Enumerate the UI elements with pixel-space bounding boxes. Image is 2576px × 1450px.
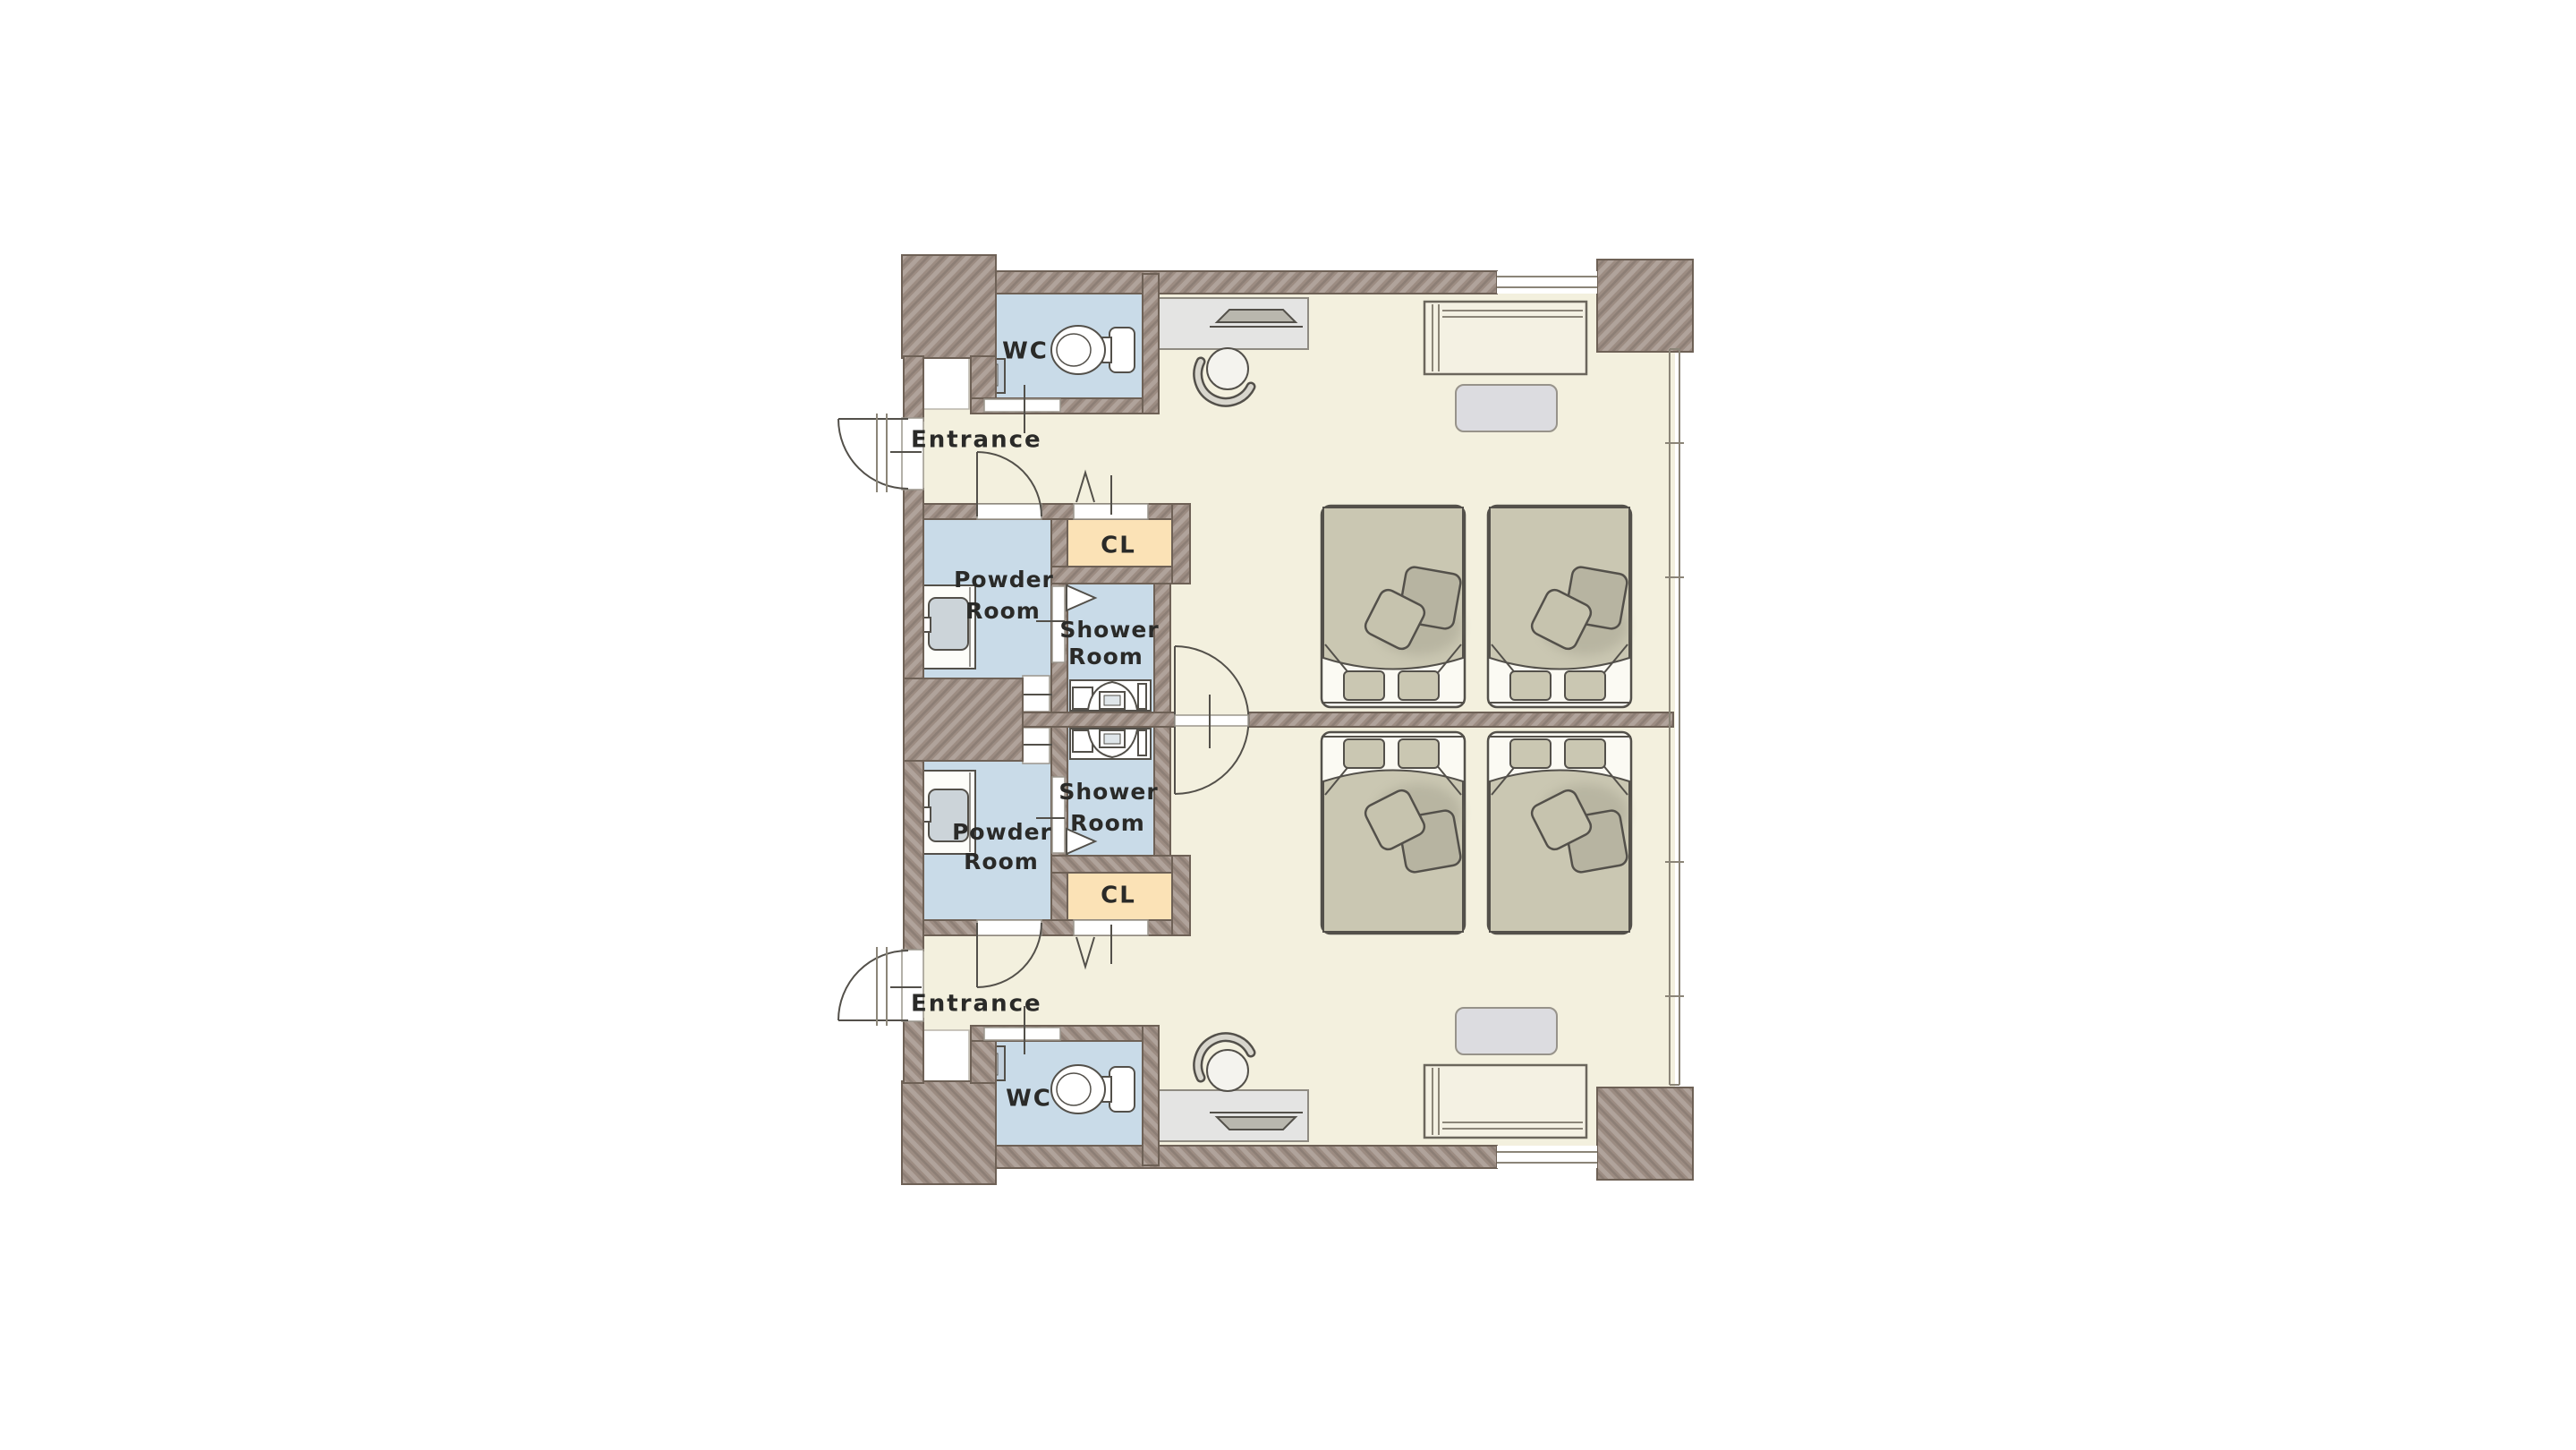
powder-room-label: Room: [965, 598, 1041, 624]
wc-label: WC: [1002, 338, 1049, 365]
entrance-label: Entrance: [911, 991, 1042, 1018]
floor-plan-canvas: WC Entrance Powder Room Shower Room CL S…: [0, 0, 2576, 1450]
shower-room-label: Room: [1070, 810, 1145, 836]
closet-label: CL: [1101, 883, 1136, 909]
shower-room-label: Room: [1068, 644, 1143, 670]
shower-room-label: Shower: [1059, 617, 1159, 643]
centre-wall-right: [1248, 712, 1673, 727]
powder-room-label: Room: [964, 849, 1039, 874]
wc-label: WC: [1006, 1086, 1052, 1113]
floor-plan-page: WC Entrance Powder Room Shower Room CL S…: [0, 0, 2576, 1450]
shower-room-label: Shower: [1058, 779, 1158, 805]
powder-room-label: Powder: [952, 819, 1052, 845]
centre-block: [904, 678, 1023, 761]
entrance-label: Entrance: [911, 427, 1042, 454]
powder-room-label: Powder: [954, 567, 1054, 593]
closet-label: CL: [1101, 533, 1136, 559]
centre-wall-left: [1023, 712, 1175, 727]
